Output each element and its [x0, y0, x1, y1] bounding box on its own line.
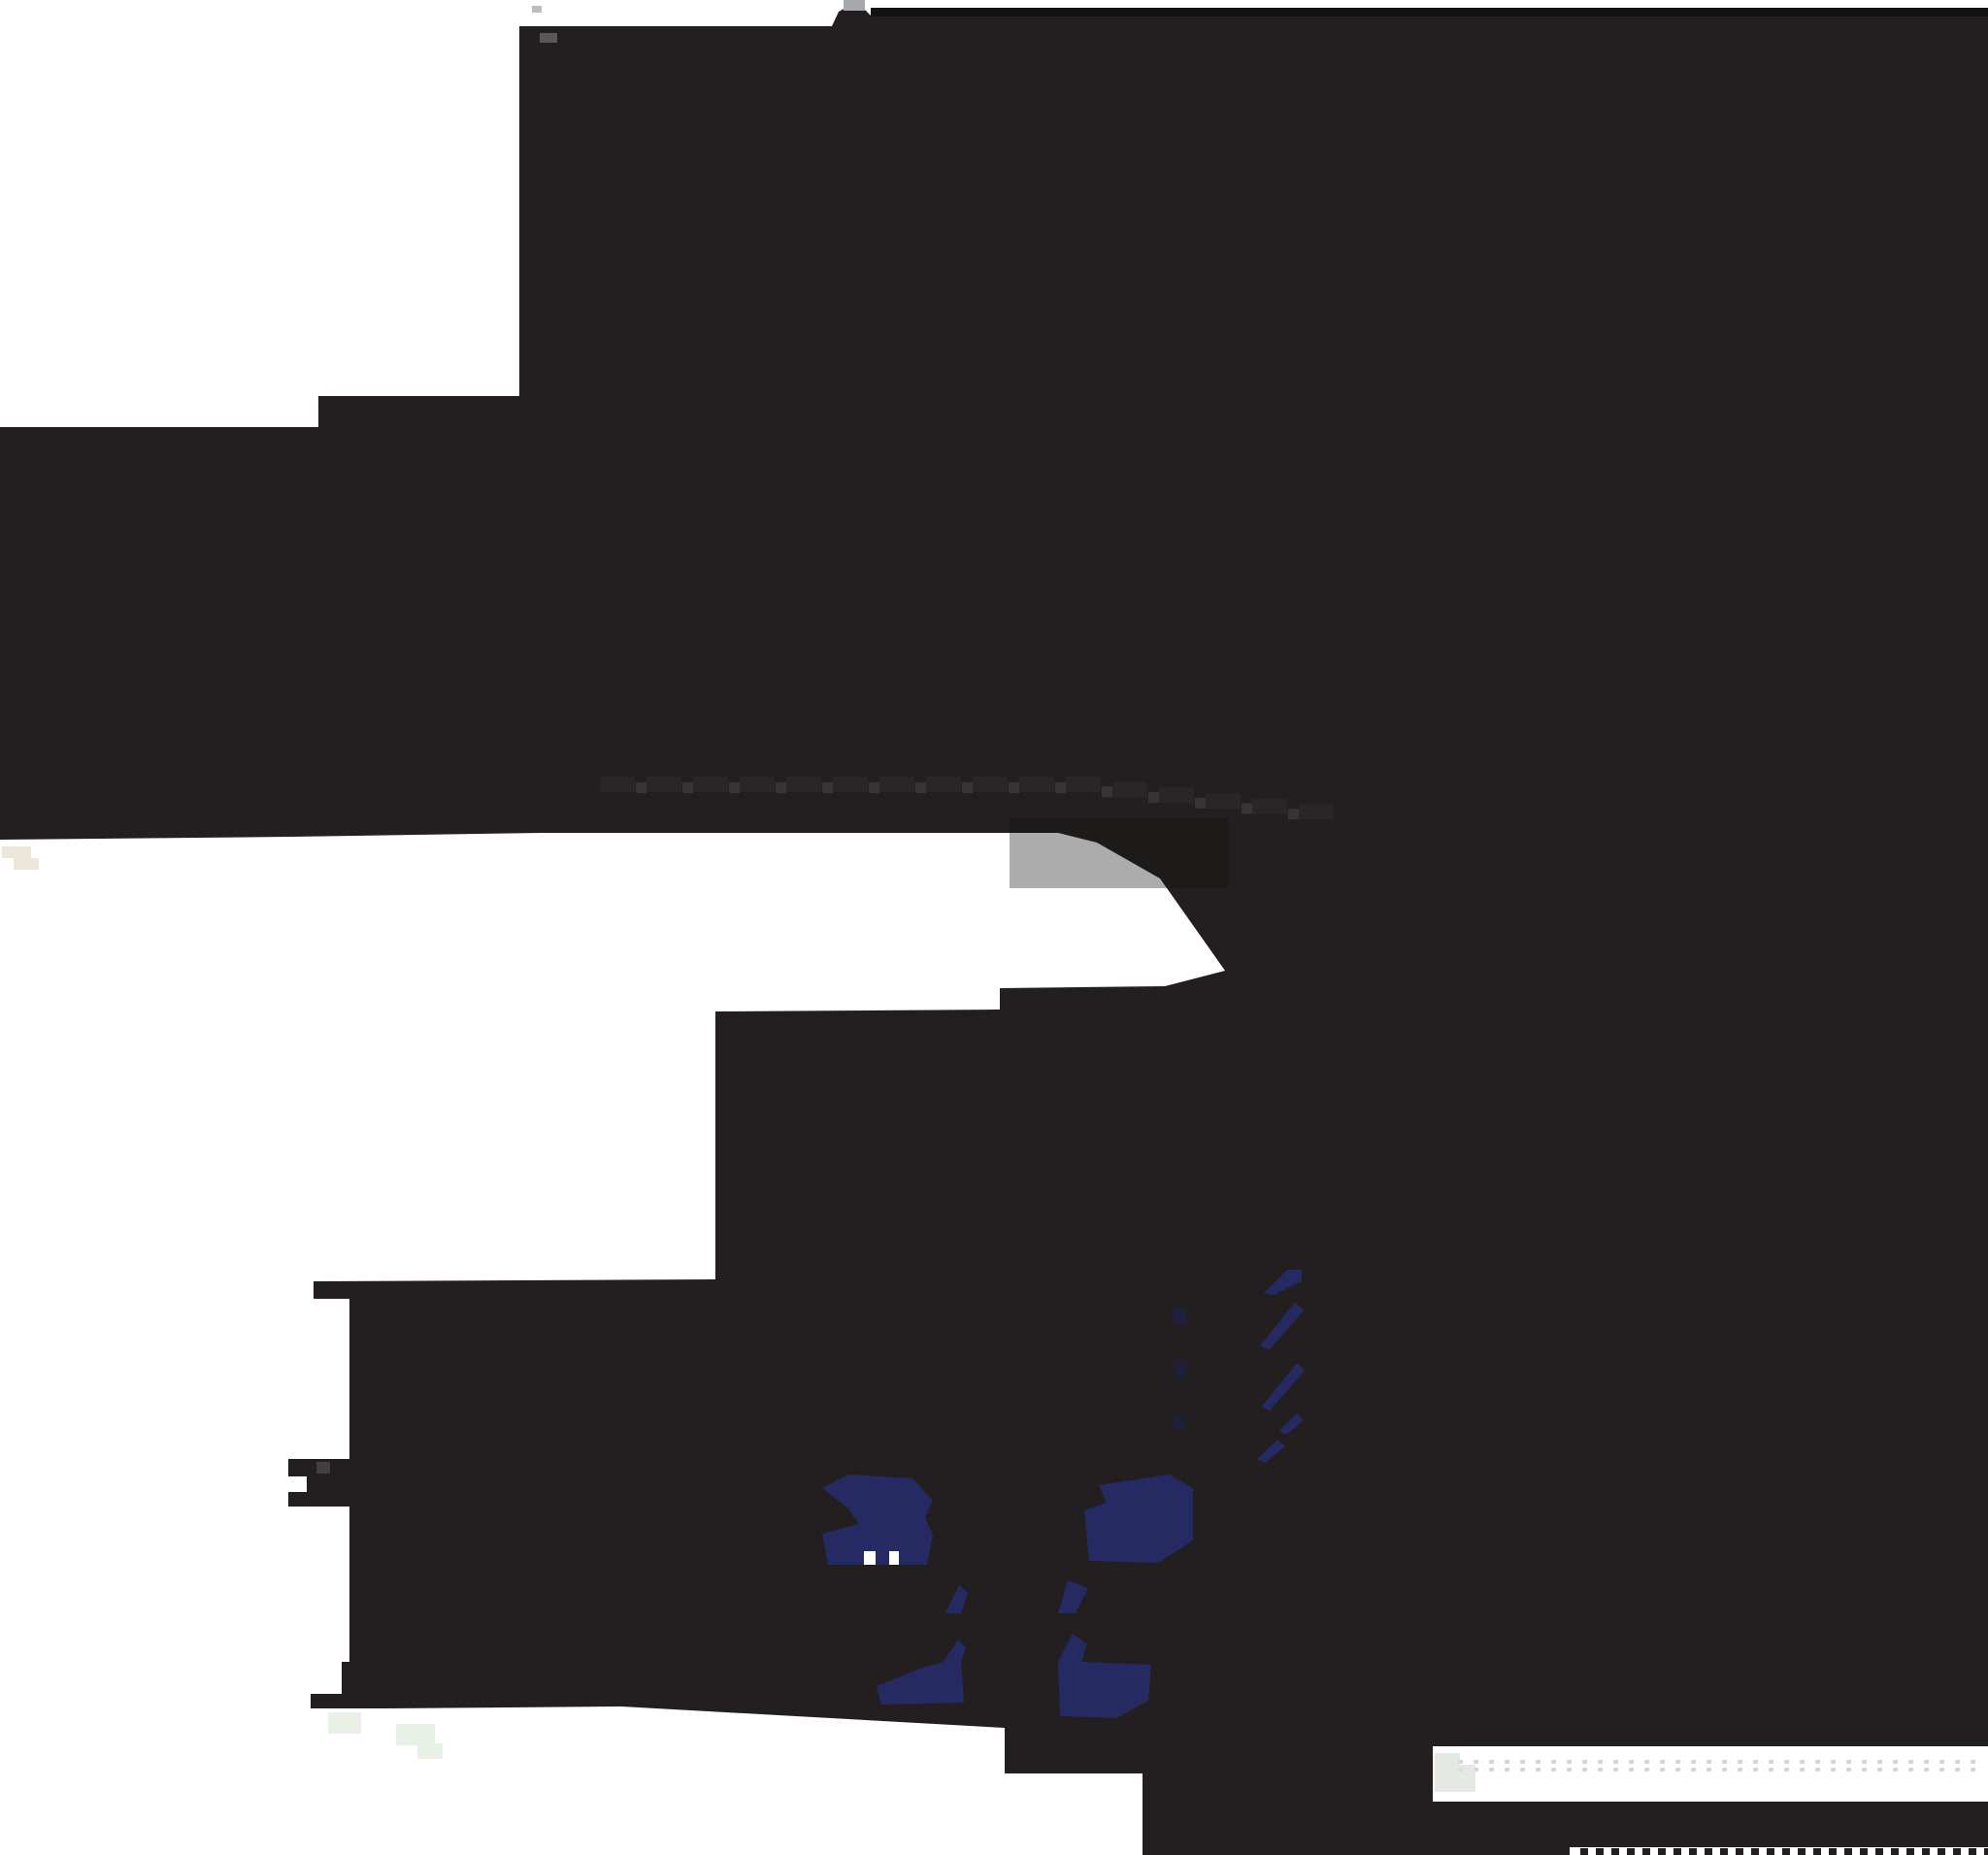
- band-dot-row-upper-shape: [1567, 1760, 1572, 1764]
- band-dot-row-lower-shape: [1862, 1768, 1867, 1772]
- top-edge-dark-line: [871, 8, 1988, 17]
- sprocket-strip-row-shape: [646, 777, 681, 792]
- bottom-sliver-dashes-shape: [1689, 1848, 1697, 1855]
- band-dot-row-lower-shape: [1551, 1768, 1556, 1772]
- bottom-sliver-dashes-shape: [1938, 1848, 1945, 1855]
- blue-ink-shapes-shape: [1084, 1474, 1193, 1563]
- edge-specks-shape: [540, 33, 557, 43]
- band-dot-row-upper-shape: [1520, 1760, 1525, 1764]
- band-dot-row-upper-shape: [1722, 1760, 1727, 1764]
- band-dot-row-upper-shape: [1629, 1760, 1634, 1764]
- band-dot-row-upper-shape: [1536, 1760, 1541, 1764]
- sprocket-strip-row-shape: [973, 777, 1008, 792]
- band-dot-row-upper-shape: [1769, 1760, 1773, 1764]
- band-dot-row-lower-shape: [1489, 1768, 1494, 1772]
- band-dot-row-lower-shape: [1613, 1768, 1618, 1772]
- band-dot-row-upper-shape: [1738, 1760, 1742, 1764]
- band-dot-row-lower-shape: [1893, 1768, 1898, 1772]
- beige-marks-shape: [2, 846, 31, 858]
- band-dot-row-upper-shape: [1908, 1760, 1913, 1764]
- band-dot-row-lower-shape: [1908, 1768, 1913, 1772]
- pale-green-marks-shape: [417, 1743, 443, 1759]
- blue-specks-shape: [1173, 1308, 1186, 1323]
- bottom-sliver-dashes-shape: [1751, 1848, 1759, 1855]
- sprocket-knob-row-shape: [1055, 782, 1066, 793]
- band-dot-row-lower-shape: [1738, 1768, 1742, 1772]
- band-dot-row-upper-shape: [1474, 1760, 1478, 1764]
- sprocket-strip-row-shape: [833, 777, 868, 792]
- blue-specks-shape: [1176, 1362, 1186, 1378]
- band-dot-row-upper-shape: [1862, 1760, 1867, 1764]
- band-dot-row-upper-shape: [1598, 1760, 1603, 1764]
- band-dot-row-upper-shape: [1691, 1760, 1696, 1764]
- band-dot-row-upper-shape: [1489, 1760, 1494, 1764]
- pale-green-marks-shape: [328, 1712, 361, 1734]
- band-dot-row-upper-shape: [1582, 1760, 1587, 1764]
- band-dot-row-upper-shape: [1505, 1760, 1509, 1764]
- sprocket-knob-row-shape: [776, 782, 786, 793]
- band-dot-row-upper-shape: [1831, 1760, 1836, 1764]
- bottom-sliver-dashes-shape: [1658, 1848, 1666, 1855]
- sprocket-knob-row-shape: [1102, 786, 1112, 797]
- band-streak-marks-shape: [1456, 1765, 1475, 1792]
- sprocket-knob-row-shape: [869, 782, 879, 793]
- band-dot-row-upper-shape: [1613, 1760, 1618, 1764]
- bottom-sliver-dashes-shape: [1767, 1848, 1774, 1855]
- blue-blob-slits-shape: [889, 1551, 899, 1565]
- bottom-sliver-dashes-shape: [1860, 1848, 1868, 1855]
- sprocket-strip-row-shape: [1019, 777, 1054, 792]
- bottom-sliver-dashes-shape: [1782, 1848, 1790, 1855]
- bottom-sliver-dashes-shape: [1642, 1848, 1650, 1855]
- band-dot-row-lower-shape: [1536, 1768, 1541, 1772]
- blue-specks-shape: [1174, 1416, 1184, 1429]
- sprocket-knob-row-shape: [1009, 782, 1019, 793]
- band-dot-row-lower-shape: [1939, 1768, 1944, 1772]
- band-dot-row-lower-shape: [1567, 1768, 1572, 1772]
- band-dot-row-upper-shape: [1675, 1760, 1680, 1764]
- band-dot-row-upper-shape: [1660, 1760, 1665, 1764]
- bottom-sliver-dashes-shape: [1611, 1848, 1619, 1855]
- sprocket-strip-row-shape: [1159, 787, 1194, 803]
- blue-blob-slits-shape: [864, 1551, 876, 1565]
- band-dot-row-upper-shape: [1644, 1760, 1649, 1764]
- bottom-sliver-dashes-shape: [1705, 1848, 1712, 1855]
- band-dot-row-lower-shape: [1831, 1768, 1836, 1772]
- sprocket-knob-row-shape: [915, 782, 926, 793]
- sprocket-knob-row-shape: [1148, 792, 1159, 803]
- zoomed-raster-view: [0, 0, 1988, 1855]
- bottom-sliver-dashes-shape: [1580, 1848, 1588, 1855]
- band-dot-row-lower-shape: [1955, 1768, 1960, 1772]
- band-dot-row-lower-shape: [1753, 1768, 1758, 1772]
- bottom-sliver-dashes-shape: [1720, 1848, 1728, 1855]
- beige-marks-shape: [14, 858, 39, 870]
- sprocket-knob-row-shape: [682, 782, 693, 793]
- zoomed-raster-image: [0, 0, 1988, 1855]
- band-dot-row-lower-shape: [1800, 1768, 1805, 1772]
- bottom-sliver-dashes-shape: [1829, 1848, 1837, 1855]
- band-dot-row-lower-shape: [1598, 1768, 1603, 1772]
- band-dot-row-lower-shape: [1675, 1768, 1680, 1772]
- band-dot-row-lower-shape: [1582, 1768, 1587, 1772]
- band-dot-row-lower-shape: [1706, 1768, 1711, 1772]
- pale-green-marks-shape: [396, 1724, 435, 1745]
- edge-specks-shape: [532, 6, 542, 13]
- dash-shadow-zone-shape: [1010, 818, 1229, 888]
- band-dot-row-lower-shape: [1815, 1768, 1820, 1772]
- band-dot-row-upper-shape: [1877, 1760, 1882, 1764]
- sprocket-strip-row-shape: [1252, 799, 1287, 814]
- bottom-sliver-dashes-shape: [1953, 1848, 1961, 1855]
- bottom-sliver-dashes-shape: [1969, 1848, 1976, 1855]
- band-dot-row-upper-shape: [1924, 1760, 1929, 1764]
- band-dot-row-upper-shape: [1800, 1760, 1805, 1764]
- band-dot-row-upper-shape: [1971, 1760, 1975, 1764]
- bottom-sliver-dashes-shape: [1596, 1848, 1604, 1855]
- band-dot-row-lower-shape: [1520, 1768, 1525, 1772]
- band-dot-row-upper-shape: [1551, 1760, 1556, 1764]
- sprocket-knob-row-shape: [729, 782, 740, 793]
- band-dot-row-lower-shape: [1660, 1768, 1665, 1772]
- sprocket-strip-row-shape: [786, 777, 821, 792]
- sprocket-knob-row-shape: [1195, 798, 1206, 809]
- sprocket-strip-row-shape: [1299, 805, 1334, 820]
- sprocket-strip-row-shape: [740, 777, 775, 792]
- sprocket-knob-row-shape: [1242, 803, 1252, 813]
- band-dot-row-lower-shape: [1924, 1768, 1929, 1772]
- bottom-sliver-dashes-shape: [1798, 1848, 1806, 1855]
- band-dot-row-lower-shape: [1769, 1768, 1773, 1772]
- sprocket-knob-row-shape: [636, 782, 646, 793]
- sprocket-strip-row-shape: [1206, 793, 1241, 809]
- sprocket-strip-row-shape: [1066, 777, 1101, 792]
- band-dot-row-lower-shape: [1722, 1768, 1727, 1772]
- bottom-sliver-dashes-shape: [1844, 1848, 1852, 1855]
- sprocket-strip-row-shape: [879, 777, 914, 792]
- band-dot-row-upper-shape: [1753, 1760, 1758, 1764]
- gray-cap-shape: [844, 0, 865, 11]
- tab-inner-square: [316, 1462, 330, 1474]
- sprocket-knob-row-shape: [962, 782, 973, 793]
- sprocket-strip-row-shape: [600, 777, 635, 792]
- band-dot-row-upper-shape: [1815, 1760, 1820, 1764]
- band-dot-row-lower-shape: [1644, 1768, 1649, 1772]
- band-dot-row-upper-shape: [1846, 1760, 1851, 1764]
- bottom-sliver-dashes-shape: [1984, 1848, 1988, 1855]
- sprocket-strip-row-shape: [926, 777, 961, 792]
- band-dot-row-upper-shape: [1955, 1760, 1960, 1764]
- bottom-sliver-dashes-shape: [1627, 1848, 1635, 1855]
- bottom-sliver-dashes-shape: [1736, 1848, 1743, 1855]
- band-dot-row-upper-shape: [1893, 1760, 1898, 1764]
- bottom-sliver-dashes-shape: [1906, 1848, 1914, 1855]
- band-dot-row-lower-shape: [1846, 1768, 1851, 1772]
- band-dot-row-upper-shape: [1706, 1760, 1711, 1764]
- sprocket-strip-row-shape: [693, 777, 728, 792]
- gray-cap: [844, 0, 865, 11]
- band-dot-row-lower-shape: [1971, 1768, 1975, 1772]
- sprocket-strip-row-shape: [1112, 782, 1147, 798]
- tab-inner-square-shape: [316, 1462, 330, 1474]
- bottom-sliver-dashes-shape: [1891, 1848, 1899, 1855]
- top-edge-dark-line-shape: [871, 8, 1988, 17]
- band-dot-row-upper-shape: [1939, 1760, 1944, 1764]
- sprocket-knob-row-shape: [1288, 809, 1299, 819]
- dash-shadow-zone: [1010, 818, 1229, 888]
- band-dot-row-lower-shape: [1877, 1768, 1882, 1772]
- bottom-sliver-dashes-shape: [1813, 1848, 1821, 1855]
- band-dot-row-lower-shape: [1691, 1768, 1696, 1772]
- band-dot-row-lower-shape: [1629, 1768, 1634, 1772]
- bottom-sliver-dashes-shape: [1673, 1848, 1681, 1855]
- band-dot-row-lower-shape: [1505, 1768, 1509, 1772]
- sprocket-knob-row-shape: [822, 782, 833, 793]
- band-dot-row-lower-shape: [1784, 1768, 1789, 1772]
- band-dot-row-upper-shape: [1784, 1760, 1789, 1764]
- bottom-sliver-dashes-shape: [1875, 1848, 1883, 1855]
- bottom-sliver-dashes-shape: [1922, 1848, 1930, 1855]
